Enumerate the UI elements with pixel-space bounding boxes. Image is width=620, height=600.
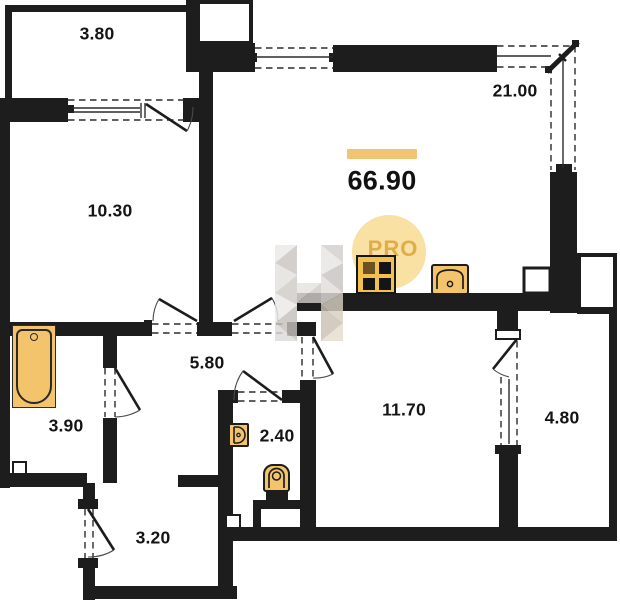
room-label-wc: 2.40 — [260, 426, 295, 447]
stove-burner — [379, 262, 391, 274]
room-label-balcony-top: 3.80 — [80, 24, 115, 45]
bathtub-drain — [30, 333, 38, 341]
room-label-living-kitchen: 21.00 — [493, 81, 538, 102]
washbasin-icon — [228, 423, 249, 447]
room-label-room-right: 11.70 — [382, 400, 426, 421]
total-area-accent-bar — [347, 149, 417, 159]
total-area-label: 66.90 — [347, 166, 416, 197]
bathtub-icon — [12, 325, 56, 408]
room-label-balcony-right: 4.80 — [545, 408, 580, 429]
room-label-room-left: 10.30 — [88, 201, 133, 222]
stove-icon — [356, 255, 396, 294]
room-label-hallway: 5.80 — [190, 353, 225, 374]
room-label-entry-hall: 3.20 — [136, 528, 171, 549]
stove-burner — [363, 262, 375, 274]
room-label-bathroom: 3.90 — [49, 416, 84, 437]
stove-burner — [363, 278, 375, 290]
stove-burner — [379, 278, 391, 290]
kitchen-sink-icon — [431, 264, 469, 295]
floor-plan-canvas: PRO 66.90 3.80 10.30 21.00 5.80 3.90 — [0, 0, 620, 600]
toilet-icon — [263, 464, 290, 492]
h-logo-watermark — [275, 245, 345, 343]
